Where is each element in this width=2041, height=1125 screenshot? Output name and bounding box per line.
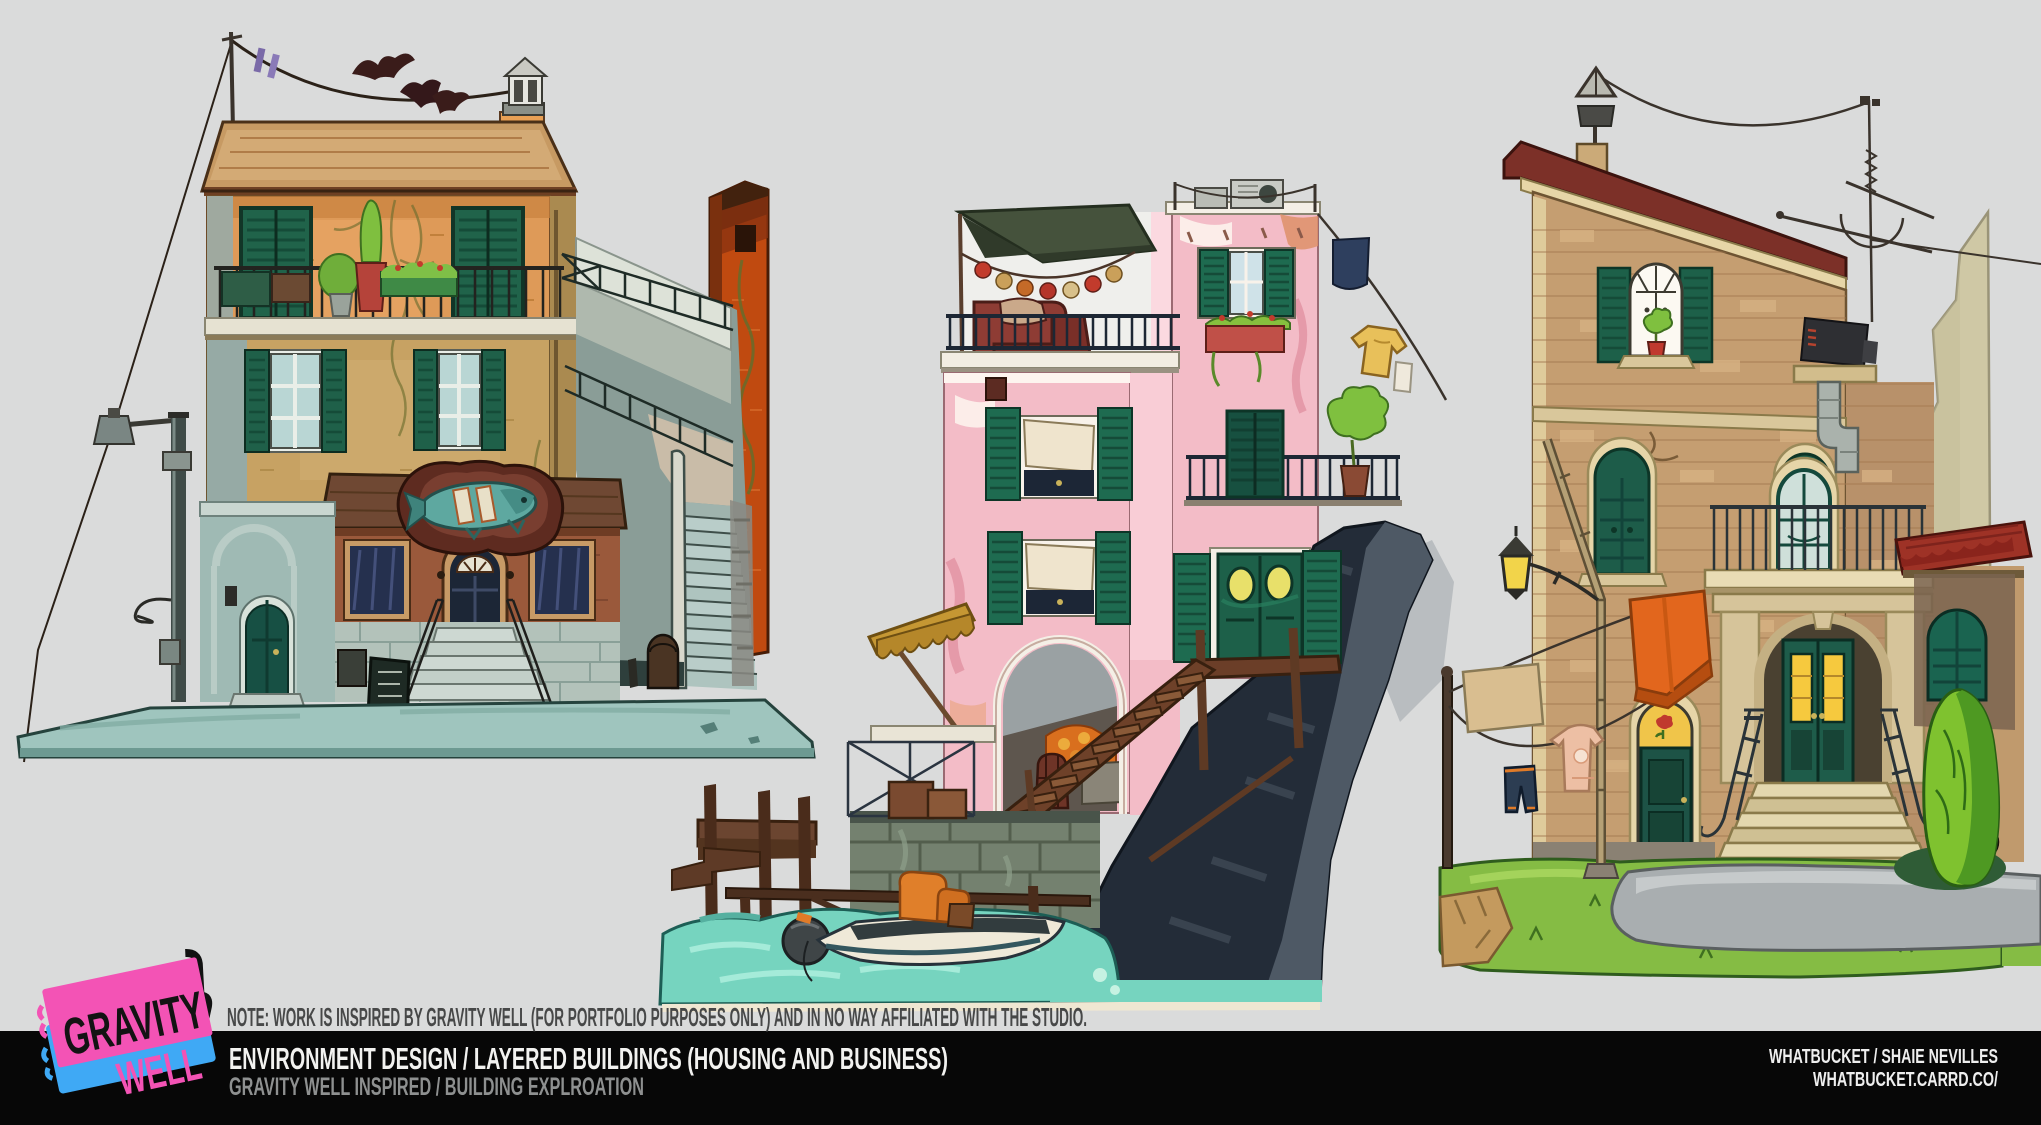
svg-text:WHATBUCKET / SHAIE NEVILLES: WHATBUCKET / SHAIE NEVILLES bbox=[1769, 1046, 1998, 1068]
svg-text:NOTE: WORK IS INSPIRED BY GRAV: NOTE: WORK IS INSPIRED BY GRAVITY WELL (… bbox=[227, 1002, 1087, 1032]
svg-text:WHATBUCKET.CARRD.CO/: WHATBUCKET.CARRD.CO/ bbox=[1813, 1069, 1998, 1091]
svg-text:ENVIRONMENT DESIGN / LAYERED B: ENVIRONMENT DESIGN / LAYERED BUILDINGS (… bbox=[229, 1041, 948, 1076]
svg-text:GRAVITY WELL INSPIRED / BUILDI: GRAVITY WELL INSPIRED / BUILDING EXPLROA… bbox=[229, 1073, 644, 1101]
